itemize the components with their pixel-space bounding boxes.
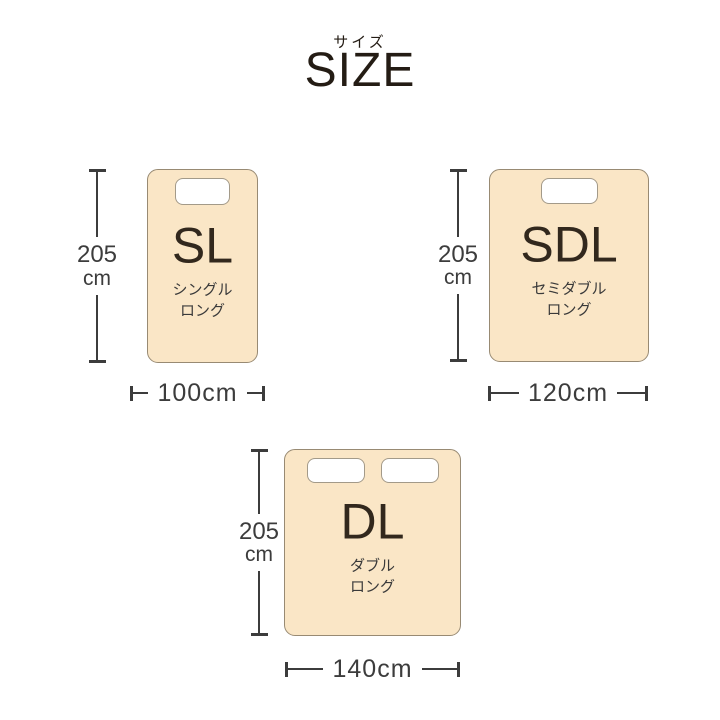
sdl-code: SDL — [520, 220, 617, 270]
sl-height-value: 205 — [77, 242, 117, 267]
sdl-name: セミダブル ロング — [520, 279, 617, 321]
dl-height-unit: cm — [239, 544, 279, 566]
dl-bed-label: DL ダブル ロング — [341, 497, 405, 598]
sdl-pillow-row — [490, 178, 648, 204]
sdl-height-label: 205 cm — [438, 242, 478, 289]
dl-name-line2: ロング — [341, 577, 405, 598]
pillow-icon — [541, 178, 598, 204]
dimension-cap-bottom — [89, 360, 106, 363]
pillow-icon — [381, 458, 439, 483]
dimension-cap-right — [262, 386, 265, 401]
dimension-line — [247, 392, 262, 394]
sdl-bed-label: SDL セミダブル ロング — [520, 220, 617, 321]
sl-width-label: 100cm — [157, 379, 237, 408]
pillow-icon — [175, 178, 230, 205]
dimension-line — [457, 294, 459, 359]
sl-width-dimension: 100cm — [130, 379, 265, 407]
dimension-line — [422, 668, 457, 670]
dl-code: DL — [341, 497, 405, 547]
sdl-height-unit: cm — [438, 267, 478, 289]
dl-bed-shape: DL ダブル ロング — [284, 449, 461, 636]
sdl-height-dimension: 205 cm — [423, 169, 493, 362]
dimension-cap-bottom — [450, 359, 467, 362]
pillow-icon — [307, 458, 365, 483]
sl-name-line2: ロング — [172, 300, 233, 321]
sl-bed-label: SL シングル ロング — [172, 220, 233, 321]
page-title: SIZE — [0, 46, 720, 96]
sl-pillow-row — [148, 178, 257, 205]
sdl-height-value: 205 — [438, 242, 478, 267]
sl-height-label: 205 cm — [77, 242, 117, 289]
dl-height-value: 205 — [239, 519, 279, 544]
dimension-line — [96, 295, 98, 360]
dl-name-line1: ダブル — [341, 556, 405, 577]
sl-name: シングル ロング — [172, 279, 233, 321]
dl-width-dimension: 140cm — [285, 655, 460, 683]
dimension-line — [258, 452, 260, 514]
dimension-line — [617, 392, 645, 394]
dl-name: ダブル ロング — [341, 556, 405, 598]
dimension-line — [288, 668, 323, 670]
sl-bed-shape: SL シングル ロング — [147, 169, 258, 363]
sdl-name-line2: ロング — [520, 300, 617, 321]
sdl-width-dimension: 120cm — [488, 379, 648, 407]
dimension-line — [133, 392, 148, 394]
sl-name-line1: シングル — [172, 279, 233, 300]
dl-width-label: 140cm — [332, 655, 412, 684]
sl-height-dimension: 205 cm — [62, 169, 132, 363]
dimension-line — [457, 172, 459, 237]
dimension-cap-right — [645, 386, 648, 401]
dl-pillow-row — [285, 458, 460, 483]
dimension-cap-right — [457, 662, 460, 677]
dimension-line — [96, 172, 98, 237]
dimension-line — [491, 392, 519, 394]
sl-code: SL — [172, 220, 233, 270]
sdl-name-line1: セミダブル — [520, 279, 617, 300]
dimension-line — [258, 571, 260, 633]
dimension-cap-bottom — [251, 633, 268, 636]
sdl-bed-shape: SDL セミダブル ロング — [489, 169, 649, 362]
sl-height-unit: cm — [77, 268, 117, 290]
sdl-width-label: 120cm — [528, 379, 608, 408]
size-chart-diagram: サイズ SIZE 205 cm SL シングル ロング — [0, 0, 720, 720]
dl-height-label: 205 cm — [239, 519, 279, 566]
